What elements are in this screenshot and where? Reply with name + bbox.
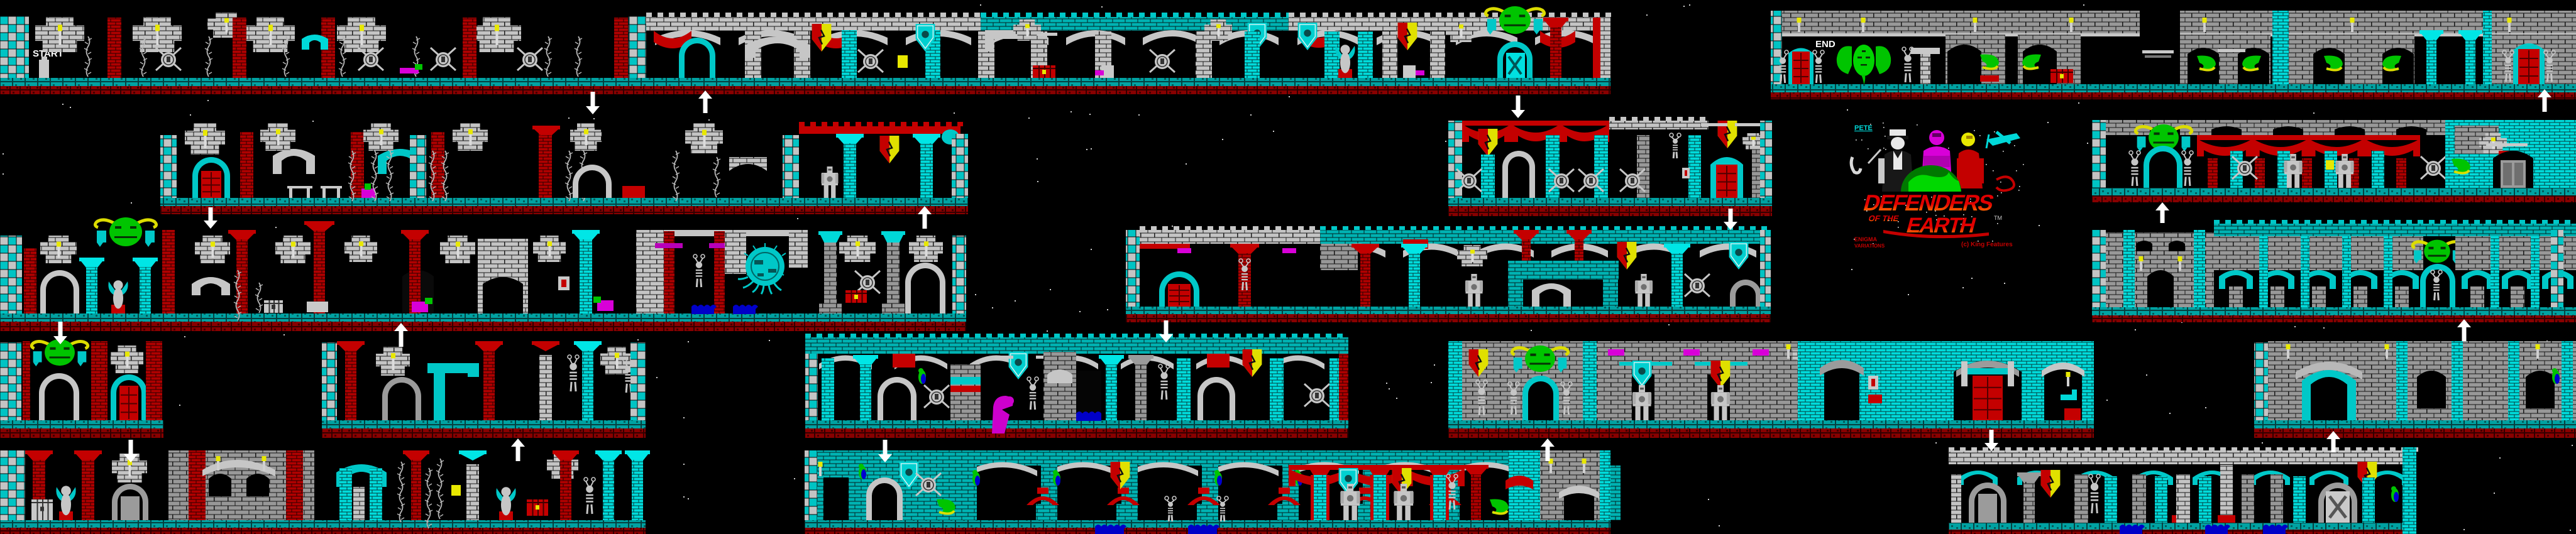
svg-text:(c) King Features: (c) King Features <box>1961 241 2013 248</box>
svg-text:TM: TM <box>1994 215 2002 221</box>
svg-text:OF THE: OF THE <box>1868 214 1900 223</box>
svg-text:END: END <box>1815 39 1836 50</box>
svg-text:VARIATIONS: VARIATIONS <box>1854 243 1885 249</box>
svg-text:PETE: PETE <box>1854 124 1873 132</box>
svg-text:EARTH: EARTH <box>1904 214 1978 237</box>
svg-text:ENIGMA: ENIGMA <box>1854 236 1878 242</box>
svg-text:DEFENDERS: DEFENDERS <box>1861 190 1996 215</box>
